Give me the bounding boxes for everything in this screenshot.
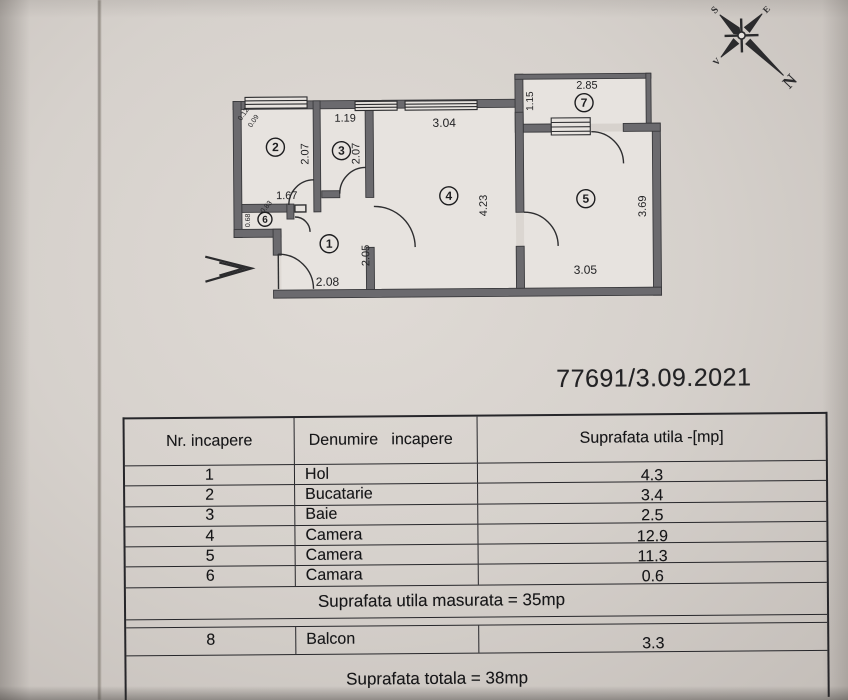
dimension-label: 3.69 <box>637 196 649 218</box>
area-table: Nr. incapere Denumire incapere Suprafata… <box>123 412 830 700</box>
paper-fold-edge <box>98 0 101 700</box>
table-row-balcon: 8 Balcon 3.3 <box>126 622 827 656</box>
room-area: 3.4 <box>478 485 826 507</box>
room-area: 2.5 <box>478 505 826 527</box>
room-name: Camera <box>295 524 478 545</box>
room-area: 0.6 <box>479 566 827 588</box>
room-name: Camara <box>296 565 479 586</box>
photographed-document: N S E V 0.120.091.193.042.851.152.072.07… <box>0 0 848 700</box>
row-number: 2 <box>125 485 295 506</box>
dimension-label: 1.19 <box>334 113 356 125</box>
balcon-name: Balcon <box>296 625 479 653</box>
dimension-label: 2.08 <box>316 275 340 289</box>
table-header-row: Nr. incapere Denumire incapere Suprafata… <box>125 414 826 466</box>
balcon-nr: 8 <box>126 627 296 655</box>
dimension-label: 4.23 <box>478 195 490 217</box>
room-area: 11.3 <box>479 546 827 568</box>
room-name: Hol <box>295 464 478 485</box>
header-denumire-incapere: Denumire incapere <box>295 417 478 464</box>
table-body: 1Hol4.32Bucatarie3.43Baie2.54Camera12.95… <box>125 460 827 587</box>
dimension-label: 2.85 <box>576 80 598 92</box>
room-number: 6 <box>262 215 268 226</box>
document-content: N S E V 0.120.091.193.042.851.152.072.07… <box>0 0 848 700</box>
header-suprafata-utila: Suprafata utila -[mp] <box>478 414 826 463</box>
row-number: 4 <box>125 526 295 547</box>
room-name: Camera <box>296 545 479 566</box>
document-number: 77691/3.09.2021 <box>556 363 776 394</box>
compass-label-south: S <box>709 4 721 16</box>
floor-plan: N S E V 0.120.091.193.042.851.152.072.07… <box>0 0 848 403</box>
room-name: Baie <box>295 504 478 525</box>
dimension-label: 3.05 <box>574 263 598 277</box>
room-number: 1 <box>326 237 333 251</box>
room-area: 12.9 <box>478 526 826 548</box>
dimension-label: 2.07 <box>299 143 311 165</box>
dimension-label: 2.05 <box>360 245 372 267</box>
row-number: 1 <box>125 465 295 486</box>
room-number: 4 <box>445 189 452 203</box>
entrance-arrow-icon <box>205 256 251 281</box>
row-number: 3 <box>125 506 295 527</box>
room-area: 4.3 <box>478 465 826 487</box>
dimension-label: 2.07 <box>350 143 362 165</box>
room-number: 3 <box>338 144 345 158</box>
room-name: Bucatarie <box>295 484 478 505</box>
dimension-label: 1.67 <box>276 190 298 202</box>
dimension-label: 3.04 <box>432 116 456 130</box>
compass-label-east: E <box>761 4 772 15</box>
row-number: 5 <box>126 546 296 567</box>
row-number: 6 <box>126 566 296 587</box>
header-nr-incapere: Nr. incapere <box>125 418 295 465</box>
dimension-label: 1.15 <box>525 91 536 111</box>
compass-rose-icon: N S E V <box>684 0 823 116</box>
dimension-label: 0.68 <box>245 213 252 227</box>
balcon-area: 3.3 <box>479 630 827 660</box>
room-number: 5 <box>582 192 589 206</box>
room-number: 7 <box>581 96 588 110</box>
room-number: 2 <box>272 140 279 154</box>
